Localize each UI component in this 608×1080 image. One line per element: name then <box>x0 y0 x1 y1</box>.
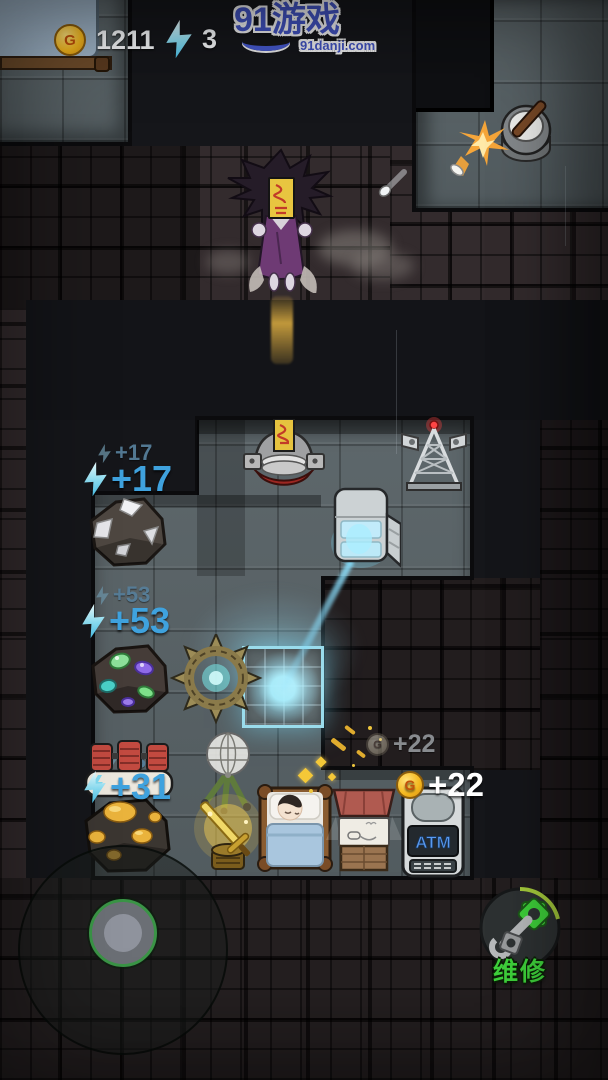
brick-left-column <box>0 305 26 880</box>
energy-value: 3 <box>202 24 217 55</box>
watermark-logo: 91游戏 91danji.com <box>234 0 384 53</box>
gold-value: 1211 <box>96 25 155 56</box>
lightning-icon <box>83 770 107 803</box>
float-text: +17 <box>111 458 172 500</box>
coin-icon: G <box>396 771 424 799</box>
wall-shadow-corner <box>197 420 245 576</box>
virtual-joystick[interactable] <box>18 845 228 1055</box>
golden-projectile-trail <box>271 296 293 364</box>
joystick-ring[interactable] <box>89 899 157 967</box>
game-screen: +31 <box>0 0 608 1080</box>
ghost-smoke <box>206 250 250 274</box>
gold-spark <box>352 764 355 767</box>
shadow-overlay <box>0 146 200 308</box>
ghost-hand-left <box>252 223 266 237</box>
float-gold22-old: G +22 <box>366 730 435 759</box>
muzzle-flash <box>443 118 515 182</box>
talisman <box>274 419 294 451</box>
hud-energy-counter: 3 <box>166 20 217 58</box>
shadow-overlay <box>540 420 608 880</box>
float-energy31: +31 <box>84 766 171 808</box>
coin-icon: G <box>366 733 389 756</box>
float-text: +22 <box>428 766 484 804</box>
joystick-knob[interactable] <box>104 914 142 952</box>
coin-icon: G <box>54 24 86 56</box>
lightning-icon <box>83 461 108 497</box>
antenna-wire <box>565 166 566 246</box>
signal-tower[interactable] <box>401 417 467 493</box>
antenna-wire <box>396 330 397 454</box>
dark-corridor <box>26 300 608 420</box>
bullet <box>374 168 410 202</box>
ghost-hand-right <box>298 223 312 237</box>
float-energy17: +17 <box>84 458 172 500</box>
bed-post <box>94 56 110 72</box>
float-text: +22 <box>393 730 435 759</box>
spike-ring-trap[interactable] <box>168 634 264 726</box>
fridge-door <box>387 515 401 566</box>
room-top-left <box>0 0 132 146</box>
bed[interactable] <box>254 780 336 876</box>
beacon-light <box>430 421 438 429</box>
watermark-swoosh <box>242 32 290 51</box>
float-energy53: +53 <box>82 600 170 642</box>
float-gold22: G +22 <box>396 766 484 804</box>
bell-alarm-machine[interactable] <box>243 419 325 491</box>
silver-ore[interactable] <box>86 494 170 568</box>
arcade-box[interactable] <box>326 786 402 876</box>
lightning-icon <box>81 603 106 639</box>
hud-gold-counter: G 1211 <box>54 24 155 56</box>
lightning-icon <box>165 19 194 59</box>
float-text: +53 <box>109 600 170 642</box>
fridge[interactable] <box>331 487 401 569</box>
float-text: +31 <box>110 766 171 808</box>
crystal-ore[interactable] <box>88 640 172 716</box>
repair-button-label: 维修 <box>480 952 560 988</box>
atm-label: ATM <box>415 833 451 852</box>
watermark-subtitle: 91danji.com <box>300 38 384 53</box>
blanket <box>267 824 323 866</box>
sparkle-icon <box>309 789 313 793</box>
ghost-smoke <box>352 252 414 280</box>
doorway-shadow <box>416 0 494 112</box>
